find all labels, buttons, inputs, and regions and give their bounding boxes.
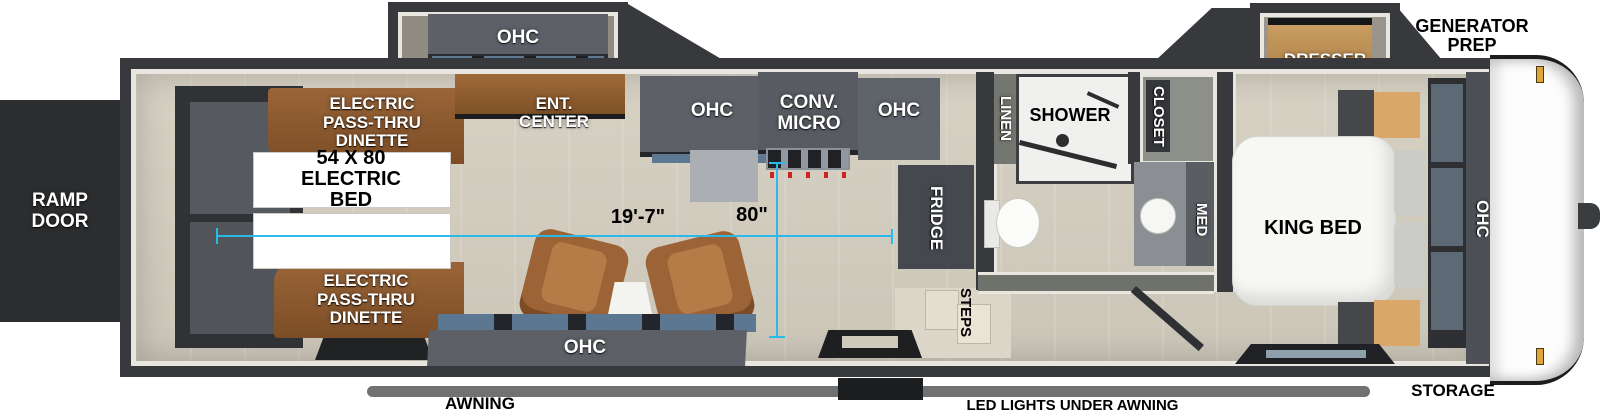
front-cap	[1490, 55, 1584, 385]
bedroom-nightstand-bottom	[1374, 300, 1420, 346]
bedroom-slide-angle-left	[1156, 8, 1252, 60]
closet-label: CLOSET	[1148, 80, 1168, 152]
dinette-top-label: ELECTRIC PASS-THRU DINETTE	[308, 95, 436, 151]
bed-pillow-bottom	[1394, 222, 1426, 288]
kitchen-ohc-left-label: OHC	[672, 100, 752, 122]
entry-step-exterior	[838, 378, 923, 400]
med-label: MED	[1190, 194, 1212, 246]
length-dimension-label: 19'-7"	[588, 206, 688, 228]
bedroom-nightstand-cab-top	[1338, 90, 1374, 138]
ramp-door-label: RAMP DOOR	[18, 186, 102, 238]
wardrobe-door-1	[1431, 84, 1463, 162]
width-dimension-label: 80"	[724, 204, 780, 226]
floorplan-canvas: RAMP DOOR OHC DRESSER ELECTRIC PASS-THRU…	[0, 0, 1600, 419]
steps-label: STEPS	[955, 284, 975, 342]
king-bed-label: KING BED	[1248, 216, 1378, 240]
kitchen-ohc-right-label: OHC	[860, 100, 938, 122]
shower-label: SHOWER	[1022, 104, 1118, 126]
shower-drain-icon	[1056, 134, 1069, 147]
electric-bed-label: 54 X 80 ELECTRIC BED	[281, 154, 421, 204]
electric-bed-lower	[253, 213, 451, 269]
length-dim-tick-left	[216, 228, 218, 244]
living-slide-ohc-label: OHC	[458, 26, 578, 50]
linen-label: LINEN	[994, 86, 1016, 150]
fridge-label: FRIDGE	[925, 178, 947, 258]
bed-pillow-top	[1394, 150, 1426, 216]
bath-sink	[1140, 198, 1176, 234]
conv-micro-label: CONV. MICRO	[772, 92, 846, 136]
entry-step-block	[925, 290, 959, 330]
generator-prep-label: GENERATOR PREP	[1402, 15, 1542, 57]
awning-label: AWNING	[430, 394, 530, 414]
clearance-light-top	[1536, 66, 1544, 83]
bedroom-nightstand-top	[1374, 92, 1420, 138]
width-dim-tick-top	[769, 162, 785, 164]
length-dimension-line	[218, 235, 893, 237]
stove-knobs-icon	[770, 172, 846, 178]
living-slide-angle-wall	[628, 4, 723, 60]
led-lights-label: LED LIGHTS UNDER AWNING	[965, 396, 1180, 416]
clearance-light-bottom	[1536, 348, 1544, 365]
garage-step-mat	[315, 338, 433, 360]
ent-center-label: ENT. CENTER	[508, 92, 600, 134]
wardrobe-door-2	[1431, 168, 1463, 246]
entry-door-mat-inner	[842, 336, 898, 348]
width-dim-tick-bottom	[769, 336, 785, 338]
storage-label: STORAGE	[1406, 381, 1500, 401]
bedroom-nightstand-cab-bottom	[1338, 302, 1374, 346]
length-dim-tick-right	[891, 229, 893, 244]
stove-icon	[766, 148, 850, 170]
bedroom-rug-inner	[1266, 350, 1366, 358]
wardrobe-door-3	[1431, 252, 1463, 330]
coupler-handle	[1578, 203, 1600, 229]
toilet-bowl	[996, 198, 1040, 248]
shower	[1016, 74, 1134, 184]
dinette-bottom-label: ELECTRIC PASS-THRU DINETTE	[302, 272, 430, 328]
sofa-ohc-label: OHC	[540, 336, 630, 360]
closet-wall	[1128, 72, 1140, 164]
kitchen-counter	[690, 150, 758, 202]
width-dimension-line	[776, 163, 778, 338]
bathroom-wall-bottom	[978, 272, 1214, 294]
